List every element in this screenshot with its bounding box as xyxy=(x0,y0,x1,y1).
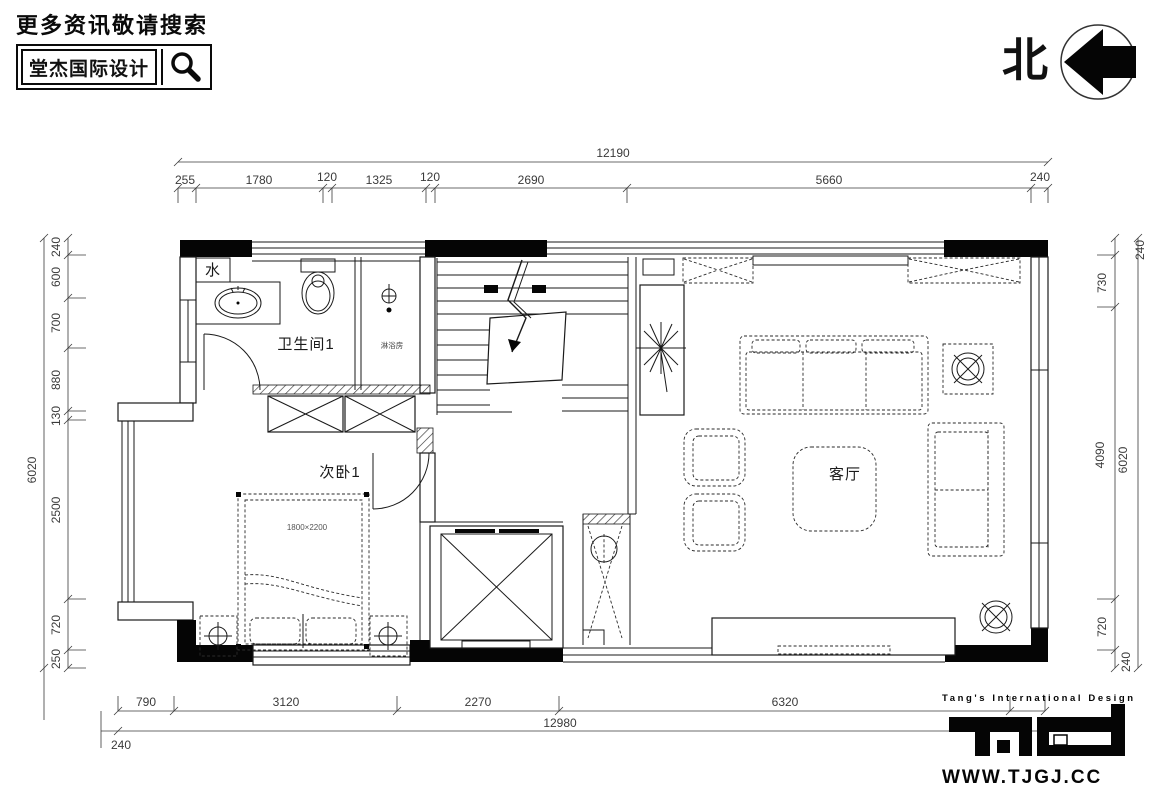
dim-top-4: 120 xyxy=(420,170,440,184)
bedroom: 次卧1 1800×2200 xyxy=(200,453,429,656)
brand-search-box: 堂杰国际设计 xyxy=(16,44,212,90)
loveseat xyxy=(928,423,1004,556)
dim-right-0: 240 xyxy=(1133,240,1147,260)
dim-left-5: 2500 xyxy=(49,496,63,523)
dim-bottom-3: 6320 xyxy=(772,695,799,709)
bathroom-label: 卫生间1 xyxy=(277,336,334,353)
bathroom-door-arc xyxy=(204,334,260,390)
bed-size-label: 1800×2200 xyxy=(287,523,328,532)
dim-right-4: 240 xyxy=(1119,652,1133,672)
dim-top-7: 240 xyxy=(1030,170,1050,184)
dim-bottom-0: 790 xyxy=(136,695,156,709)
footer-brand-text: Tang's International Design xyxy=(942,693,1142,704)
search-icon xyxy=(161,49,207,85)
shower-label: 淋浴房 xyxy=(381,340,404,350)
living-room: 客厅 xyxy=(683,258,1020,655)
dim-right-2: 4090 xyxy=(1093,441,1107,468)
dim-left-7: 250 xyxy=(49,649,63,669)
dim-left-3: 880 xyxy=(49,370,63,390)
dim-top-total: 12190 xyxy=(596,146,630,160)
north-arrow-icon xyxy=(1056,20,1140,104)
duct-shaft xyxy=(583,514,630,645)
floorplan-page: 12190 255 1780 120 1325 120 2690 5660 24… xyxy=(0,0,1158,800)
armchair-top xyxy=(684,429,745,486)
shower-head-icon xyxy=(382,284,396,313)
footer-logo: Tang's International Design WWW.TJGJ.CC xyxy=(942,693,1142,789)
water-label: 水 xyxy=(205,262,221,279)
dim-bottom-total: 12980 xyxy=(543,716,577,730)
coffee-table: 客厅 xyxy=(793,447,876,531)
dim-bottom-left: 240 xyxy=(111,738,131,752)
north-label: 北 xyxy=(1002,24,1048,90)
living-room-label: 客厅 xyxy=(829,466,861,483)
dim-top-6: 5660 xyxy=(816,173,843,187)
bathroom: 水 卫生间1 淋浴房 xyxy=(196,258,403,390)
floor-lamp-icon xyxy=(980,601,1012,633)
dim-left-1: 600 xyxy=(49,267,63,287)
dim-top-2: 120 xyxy=(317,170,337,184)
search-hint-text: 更多资讯敬请搜索 xyxy=(16,8,212,40)
side-table xyxy=(943,344,993,394)
armchair-bottom xyxy=(684,494,745,551)
wardrobe xyxy=(268,396,415,432)
brand-name: 堂杰国际设计 xyxy=(21,49,157,85)
dim-bottom-2: 2270 xyxy=(465,695,492,709)
planter xyxy=(636,259,686,415)
dim-left-0: 240 xyxy=(49,237,63,257)
dim-top-1: 1780 xyxy=(246,173,273,187)
elevator xyxy=(430,526,563,648)
bedroom-label: 次卧1 xyxy=(319,464,360,481)
sofa xyxy=(740,336,928,414)
dim-top-5: 2690 xyxy=(518,173,545,187)
dim-left-6: 720 xyxy=(49,615,63,635)
footer-website: WWW.TJGJ.CC xyxy=(942,767,1142,789)
dim-left-total: 6020 xyxy=(25,456,39,483)
dim-right-total: 6020 xyxy=(1116,446,1130,473)
staircase xyxy=(437,258,628,415)
tjd-logo-icon xyxy=(942,704,1137,760)
window-bench-left xyxy=(683,258,753,283)
dim-right-1: 730 xyxy=(1095,273,1109,293)
toilet-icon xyxy=(301,259,335,314)
tv-cabinet xyxy=(712,618,955,655)
dim-left-4: 130 xyxy=(49,406,63,426)
dim-right-3: 720 xyxy=(1095,617,1109,637)
dim-top-3: 1325 xyxy=(366,173,393,187)
header-brand: 更多资讯敬请搜索 堂杰国际设计 xyxy=(16,8,212,90)
dim-left-2: 700 xyxy=(49,313,63,333)
floorplan-drawing: 12190 255 1780 120 1325 120 2690 5660 24… xyxy=(0,0,1158,800)
bed: 1800×2200 xyxy=(236,492,369,650)
dim-bottom-1: 3120 xyxy=(273,695,300,709)
dim-top-0: 255 xyxy=(175,173,195,187)
window-bench-right xyxy=(908,258,1020,283)
